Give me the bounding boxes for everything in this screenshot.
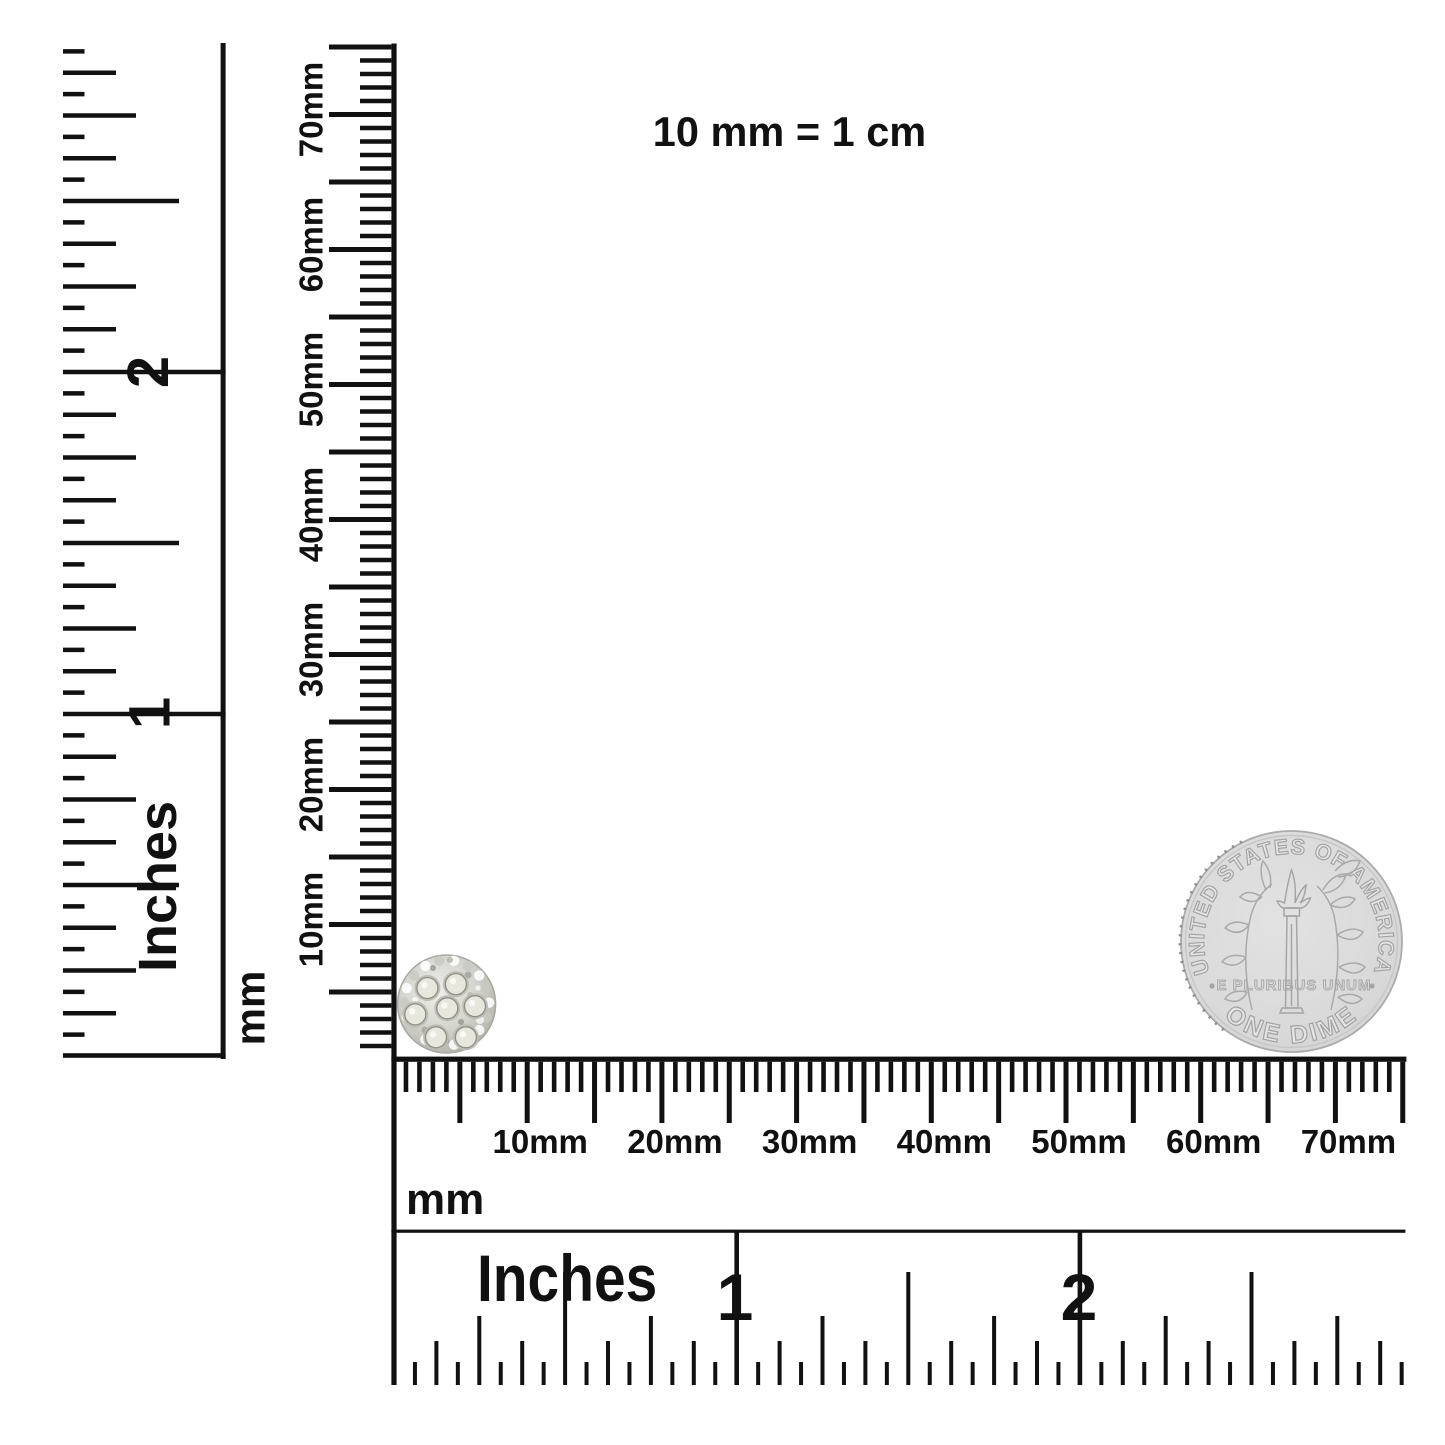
svg-text:1: 1 — [717, 1260, 754, 1334]
svg-text:60mm: 60mm — [293, 197, 330, 292]
svg-text:40mm: 40mm — [897, 1123, 992, 1160]
svg-text:40mm: 40mm — [293, 467, 330, 562]
svg-text:50mm: 50mm — [293, 332, 330, 427]
svg-text:mm: mm — [406, 1175, 484, 1224]
svg-text:10mm: 10mm — [493, 1123, 588, 1160]
svg-text:60mm: 60mm — [1166, 1123, 1261, 1160]
svg-text:mm: mm — [227, 971, 274, 1046]
svg-text:Inches: Inches — [477, 1242, 657, 1316]
svg-text:30mm: 30mm — [762, 1123, 857, 1160]
svg-text:50mm: 50mm — [1031, 1123, 1126, 1160]
svg-text:30mm: 30mm — [293, 602, 330, 697]
svg-text:2: 2 — [116, 356, 181, 388]
svg-text:20mm: 20mm — [627, 1123, 722, 1160]
svg-text:20mm: 20mm — [293, 737, 330, 832]
svg-text:Inches: Inches — [128, 801, 188, 972]
svg-text:10mm: 10mm — [293, 872, 330, 967]
svg-text:10 mm = 1 cm: 10 mm = 1 cm — [653, 108, 926, 155]
svg-text:2: 2 — [1061, 1260, 1098, 1334]
svg-text:1: 1 — [118, 697, 183, 729]
svg-text:70mm: 70mm — [1301, 1123, 1396, 1160]
svg-text:70mm: 70mm — [293, 62, 330, 157]
